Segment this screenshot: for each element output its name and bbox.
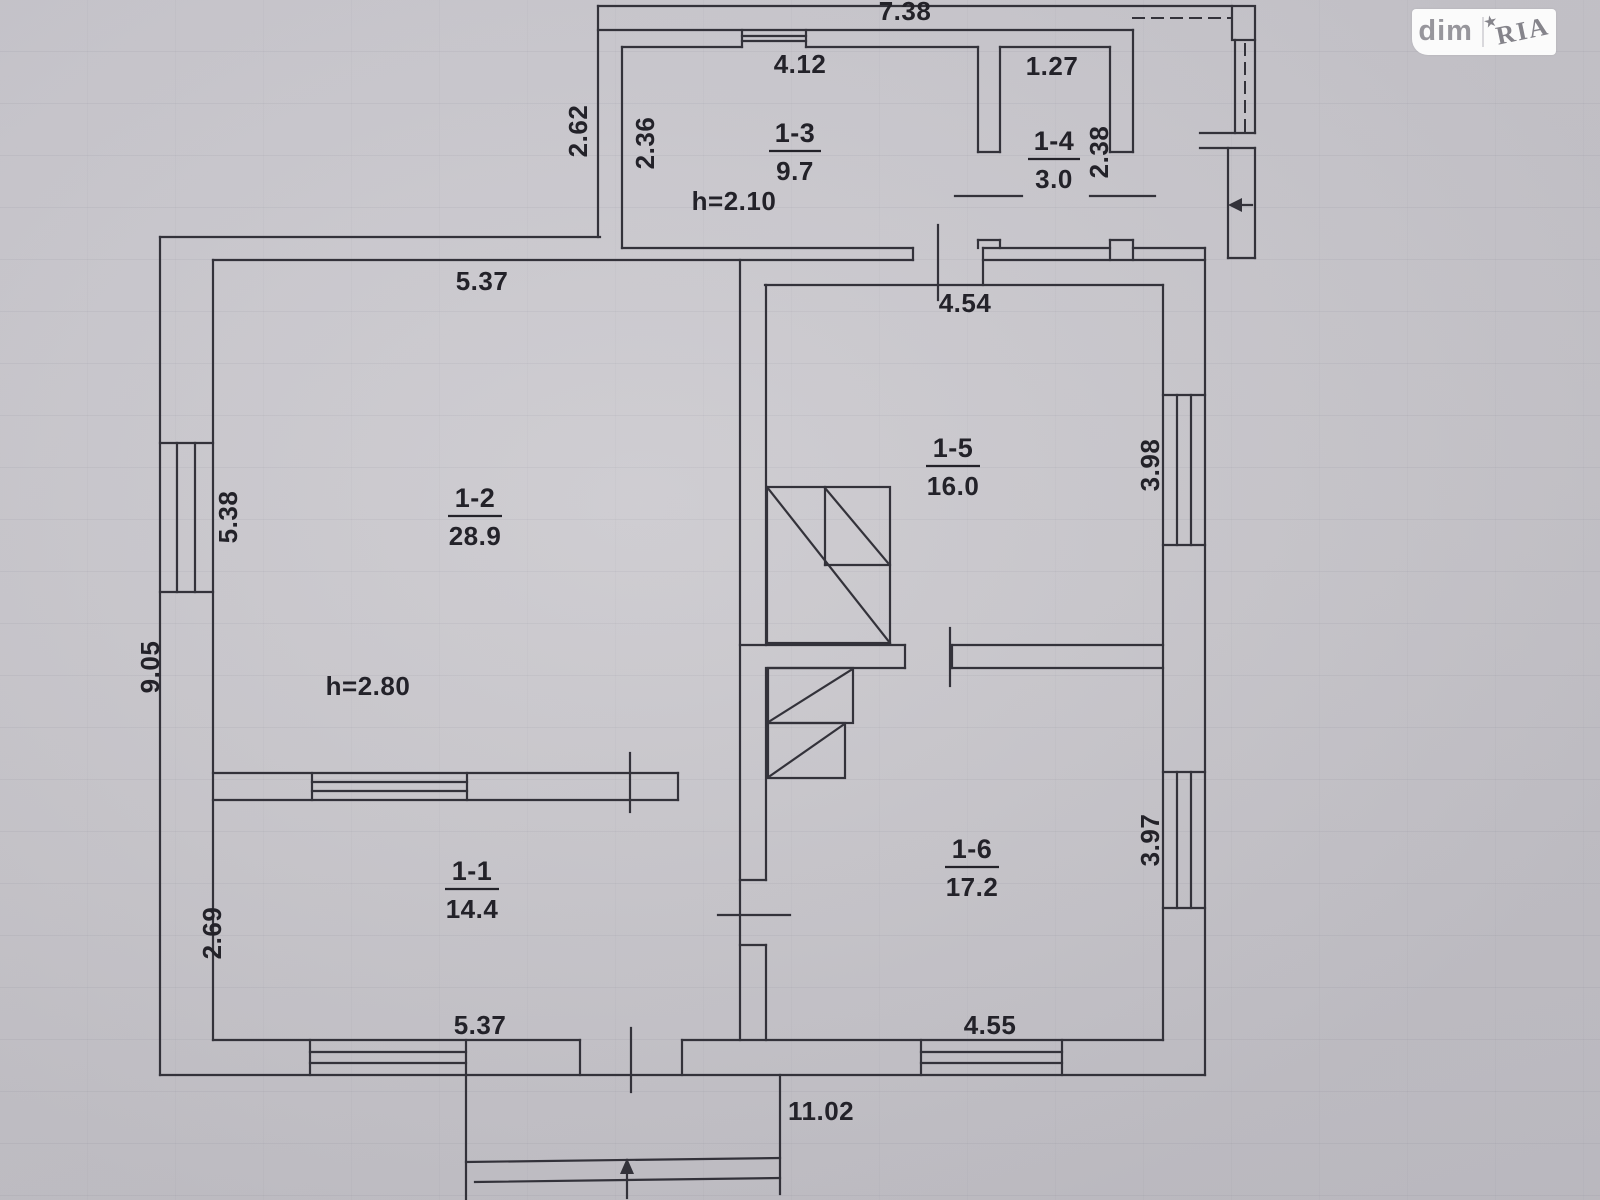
dim-room16-width: 4.55 [964,1010,1017,1040]
window-room12-room11-partition [312,773,467,800]
porch-structure [1133,6,1255,258]
window-room16-bottom [921,1040,1062,1075]
entrance-arrow-bottom [620,1158,634,1198]
room-id: 1-3 [775,118,816,148]
room-label-1-1: 1-1 14.4 [445,856,499,924]
dim-room11-depth: 2.69 [197,907,227,960]
dim-room15-depth: 3.98 [1135,439,1165,492]
room-area: 28.9 [449,521,502,551]
dim-ria-watermark: dim ★ RIA [1412,9,1556,55]
height-main: h=2.80 [326,671,411,701]
room-id: 1-1 [452,856,493,886]
entrance-arrow-porch [1228,198,1252,212]
stove-room16-lower [768,723,845,778]
room-id: 1-4 [1034,126,1075,156]
entrance-arrows [620,198,1252,1198]
stove-room15 [767,487,890,643]
watermark-ria-logo: ★ RIA [1482,10,1558,54]
window-room13-top [742,30,806,47]
window-room16-right [1163,772,1205,908]
height-annex: h=2.10 [692,186,777,216]
room-id: 1-2 [455,483,496,513]
watermark-dim-text: dim [1412,15,1482,50]
dim-annex-offset: 2.62 [563,105,593,158]
window-room15-right [1163,395,1205,545]
dim-top-total: 7.38 [879,0,932,26]
room-label-1-4: 1-4 3.0 [1028,126,1080,194]
dim-left-total: 9.05 [135,641,165,694]
dim-room13-depth: 2.36 [630,117,660,170]
room-area: 9.7 [776,156,814,186]
room-area: 17.2 [946,872,999,902]
window-room12-left [160,443,213,592]
room-label-1-2: 1-2 28.9 [448,483,502,551]
bottom-porch [466,1075,780,1200]
room-label-1-5: 1-5 16.0 [926,433,980,501]
room-label-1-3: 1-3 9.7 [769,118,821,186]
dim-room12-depth: 5.38 [213,491,243,544]
dim-room14-depth: 2.38 [1084,126,1114,179]
dim-room11-width: 5.37 [454,1010,507,1040]
room-id: 1-6 [952,834,993,864]
room-area: 3.0 [1035,164,1073,194]
room-area: 16.0 [927,471,980,501]
scanned-floor-plan-page: 7.38 4.12 1.27 2.62 2.36 2.38 h=2.10 5.3… [0,0,1600,1200]
room-id: 1-5 [933,433,974,463]
dimension-labels: 7.38 4.12 1.27 2.62 2.36 2.38 h=2.10 5.3… [135,0,1165,1126]
dim-room14-width: 1.27 [1026,51,1079,81]
dim-bottom-total: 11.02 [788,1096,854,1126]
dim-room16-depth: 3.97 [1135,814,1165,867]
dim-room13-width: 4.12 [774,49,827,79]
stove-symbols [767,487,890,778]
room-area: 14.4 [446,894,499,924]
watermark-star-icon: ★ [1481,11,1499,34]
porch-corner-pillar [1232,6,1255,40]
window-room11-bottom [310,1040,466,1075]
watermark-ria-text: RIA [1493,11,1552,51]
stove-room16-upper [768,668,853,723]
floor-plan-drawing: 7.38 4.12 1.27 2.62 2.36 2.38 h=2.10 5.3… [0,0,1600,1200]
room-label-1-6: 1-6 17.2 [945,834,999,902]
dim-room12-width: 5.37 [456,266,509,296]
dim-room15-width: 4.54 [939,288,992,318]
